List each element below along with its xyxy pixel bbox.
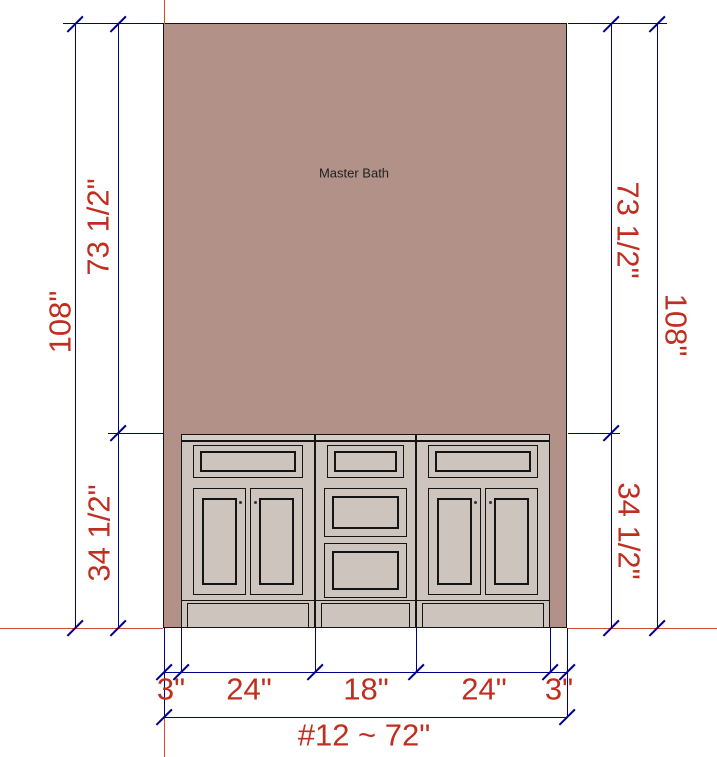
door-right	[485, 488, 538, 595]
toe-kick	[181, 601, 315, 627]
door-panel	[259, 498, 294, 585]
door-panel	[437, 498, 472, 585]
cabinet-face	[181, 441, 315, 601]
dim-label-cab3-width: 24"	[461, 674, 507, 705]
room-label: Master Bath	[319, 166, 389, 181]
cabinet-face	[315, 441, 416, 601]
drawer-front	[193, 445, 303, 478]
dim-label-overall-item: #12 ~ 72"	[298, 720, 431, 751]
toe-board	[422, 603, 544, 627]
drawer-front	[324, 488, 407, 537]
dim-label-73half-right: 73 1/2"	[613, 181, 644, 278]
toe-board	[321, 603, 410, 627]
extension-line-ceiling-left	[63, 23, 163, 24]
extension-line-countertop-right	[568, 433, 620, 434]
drawer-front	[428, 445, 538, 478]
dim-label-73half-left: 73 1/2"	[83, 178, 114, 275]
door-knob	[474, 501, 477, 504]
extension-line-cab2-cab3	[416, 628, 417, 672]
dim-label-cab2-width: 18"	[343, 674, 389, 705]
dimension-line-split-left	[118, 23, 119, 628]
vanity-sink-base-right[interactable]	[416, 434, 550, 627]
elevation-canvas: Master Bath	[0, 0, 717, 757]
drawer-panel	[200, 451, 296, 472]
countertop-edge	[181, 434, 315, 441]
floor-reference-line-right	[568, 628, 717, 629]
drawer-panel	[334, 451, 397, 472]
toe-kick	[416, 601, 550, 627]
dim-label-108-right: 108"	[661, 294, 692, 357]
dim-label-filler-right: 3"	[545, 674, 573, 705]
extension-line-filler-left	[181, 628, 182, 672]
vanity-drawer-bank-center[interactable]	[315, 434, 416, 627]
door-knob	[239, 501, 242, 504]
dim-label-34half-left: 34 1/2"	[84, 484, 115, 581]
countertop-edge	[416, 434, 550, 441]
door-left	[193, 488, 246, 595]
drawer-panel	[332, 551, 399, 590]
door-knob	[254, 501, 257, 504]
door-left	[428, 488, 481, 595]
wall-reference-line-top	[164, 0, 165, 24]
dim-label-108-left: 108"	[45, 291, 76, 354]
drawer-front	[327, 445, 404, 478]
door-panel	[202, 498, 237, 585]
door-panel	[494, 498, 529, 585]
drawer-panel	[435, 451, 531, 472]
vanity-sink-base-left[interactable]	[181, 434, 315, 627]
door-knob	[489, 501, 492, 504]
toe-kick	[315, 601, 416, 627]
drawer-front	[324, 543, 407, 598]
door-right	[250, 488, 303, 595]
dim-label-filler-left: 3"	[157, 674, 185, 705]
extension-line-ceiling-right	[568, 23, 667, 24]
dim-label-34half-right: 34 1/2"	[614, 482, 645, 579]
dim-label-cab1-width: 24"	[226, 674, 272, 705]
extension-line-cab1-cab2	[315, 628, 316, 672]
wall-reference-line-bottom	[164, 718, 165, 757]
toe-board	[187, 603, 309, 627]
drawer-panel	[332, 496, 399, 529]
floor-reference-line-left	[0, 628, 163, 629]
extension-line-filler-right	[550, 628, 551, 672]
cabinet-face	[416, 441, 550, 601]
countertop-edge	[315, 434, 416, 441]
